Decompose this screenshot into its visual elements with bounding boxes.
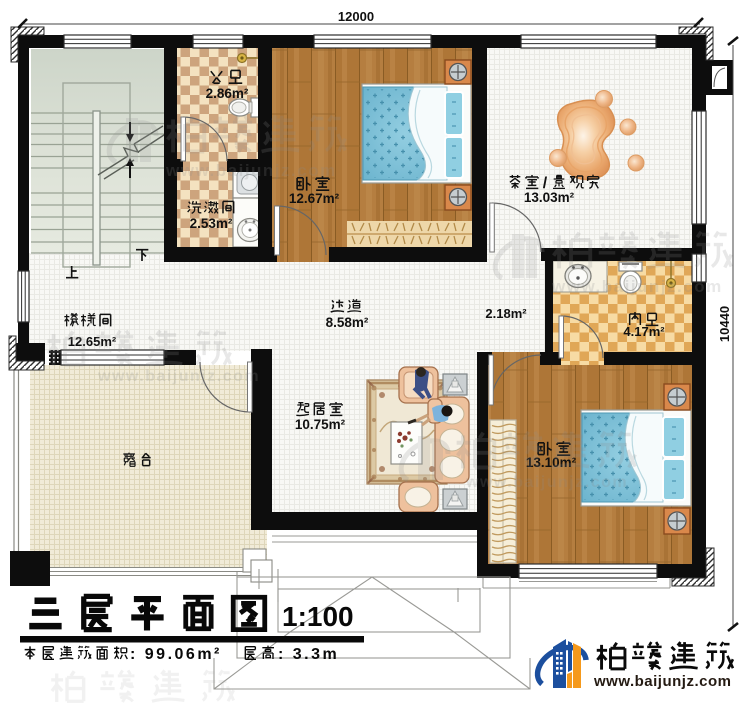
svg-text:www.baijunjz.com: www.baijunjz.com [465, 474, 628, 491]
svg-text:2.53m²: 2.53m² [190, 216, 233, 231]
svg-text:13.03m²: 13.03m² [524, 190, 575, 205]
svg-text:4.17m²: 4.17m² [623, 324, 665, 339]
svg-text:12.67m²: 12.67m² [289, 191, 340, 206]
svg-text:1:100: 1:100 [282, 601, 354, 632]
svg-text:: 99.06m²: : 99.06m² [130, 646, 222, 663]
svg-text:www.baijunjz.com: www.baijunjz.com [551, 277, 723, 296]
svg-text:2.18m²: 2.18m² [485, 306, 527, 321]
svg-text:www.baijunjz.com: www.baijunjz.com [165, 161, 337, 180]
svg-text:www.baijunjz.com: www.baijunjz.com [593, 673, 731, 690]
svg-text:10440: 10440 [717, 306, 732, 342]
svg-text:: 3.3m: : 3.3m [278, 646, 339, 663]
svg-text:www.baijunjz.com: www.baijunjz.com [97, 368, 260, 385]
svg-text:8.58m²: 8.58m² [326, 315, 369, 330]
svg-text:2.86m²: 2.86m² [206, 86, 249, 101]
svg-text:10.75m²: 10.75m² [295, 417, 346, 432]
svg-text:12000: 12000 [338, 9, 374, 24]
